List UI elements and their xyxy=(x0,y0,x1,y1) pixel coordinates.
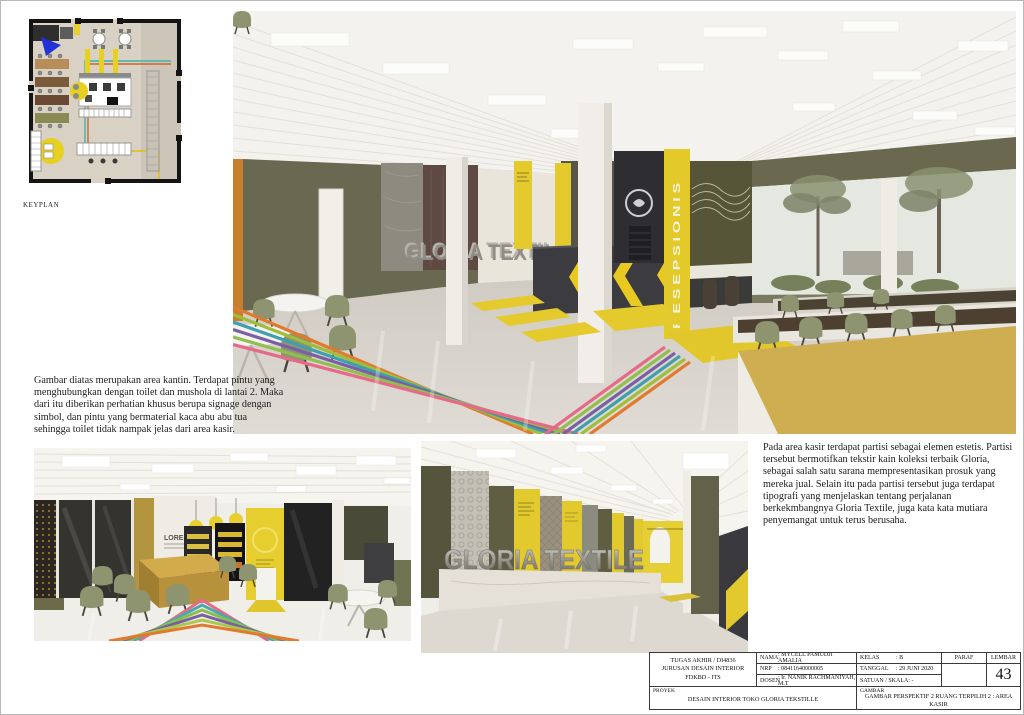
keyplan-stair xyxy=(147,71,159,171)
paraf-signature-space xyxy=(942,664,987,687)
date-value: : 29 JUNI 2020 xyxy=(896,666,933,672)
yellow-panel xyxy=(555,163,571,247)
orange-door-strip xyxy=(233,159,243,321)
faculty: FDKBD - ITS xyxy=(685,674,720,682)
lecturer-name: : Ir. NANIK RACHMANIYAH, M.T xyxy=(778,675,856,687)
reception-backwall xyxy=(614,151,664,263)
institution-cell: TUGAS AKHIR / DI4836 JURUSAN DESAIN INTE… xyxy=(650,653,757,687)
paraf-header: PARAF xyxy=(942,653,987,664)
proyek-cell: PROYEK DESAIN INTERIOR TOKO GLORIA TEKST… xyxy=(650,687,857,709)
scale-value: : - xyxy=(908,678,913,684)
canteen-render: LOREM AREA xyxy=(34,448,411,641)
kelas-cell: KELAS : B xyxy=(857,653,942,664)
paragraph-right: Pada area kasir terdapat partisi sebagai… xyxy=(763,442,1015,528)
department: JURUSAN DESAIN INTERIOR xyxy=(662,665,745,673)
student-name: : MYCELL PAMUDJI AMALIA xyxy=(778,653,856,664)
toilet-door xyxy=(319,189,343,304)
main-render: GLORIA TEXTILE GLORIA TEXTILE xyxy=(233,11,1016,434)
course-code: TUGAS AKHIR / DI4836 xyxy=(670,657,735,665)
resepsionis-text: RESEPSIONIS xyxy=(671,179,683,329)
keyplan-drawing xyxy=(19,11,191,203)
title-block: TUGAS AKHIR / DI4836 JURUSAN DESAIN INTE… xyxy=(649,652,1021,710)
bench xyxy=(34,598,64,610)
arch-doorway xyxy=(650,527,670,563)
sheet-number: 43 xyxy=(987,664,1020,687)
dosen-cell: DOSEN : Ir. NANIK RACHMANIYAH, M.T xyxy=(757,675,857,687)
glass-wall xyxy=(284,503,332,601)
paragraph-left: Gambar diatas merupakan area kantin. Ter… xyxy=(34,375,284,436)
olive-column xyxy=(691,476,719,614)
keyplan-service-circle xyxy=(38,138,64,164)
nrp-cell: NRP : 08411640000005 xyxy=(757,664,857,675)
class-value: : B xyxy=(896,655,903,661)
yellow-wall xyxy=(246,508,286,612)
drawing-title: GAMBAR PERSPEKTIF 2 RUANG TERPILIH 2 : A… xyxy=(857,693,1020,709)
yellow-panel xyxy=(514,161,532,249)
gloria-textile-3d-sign: GLORIA TEXTILE xyxy=(444,544,644,575)
window-wall xyxy=(752,137,1016,303)
gambar-cell: GAMBAR GAMBAR PERSPEKTIF 2 RUANG TERPILI… xyxy=(857,687,1020,709)
dark-counter xyxy=(719,526,748,641)
nama-cell: NAMA : MYCELL PAMUDJI AMALIA xyxy=(757,653,857,664)
tanggal-cell: TANGGAL : 29 JUNI 2020 xyxy=(857,664,942,675)
satuan-cell: SATUAN / SKALA : - xyxy=(857,675,942,687)
presentation-sheet: KEYPLAN xyxy=(0,0,1024,715)
cashier-render: GLORIA TEXTILE xyxy=(421,441,748,653)
ceiling xyxy=(34,448,411,506)
keyplan-label: KEYPLAN xyxy=(23,201,59,209)
lembar-header: LEMBAR xyxy=(987,653,1020,664)
project-title: DESAIN INTERIOR TOKO GLORIA TEKSTILLE xyxy=(650,696,856,704)
student-id: : 08411640000005 xyxy=(778,666,823,672)
patterned-wall xyxy=(34,500,56,608)
